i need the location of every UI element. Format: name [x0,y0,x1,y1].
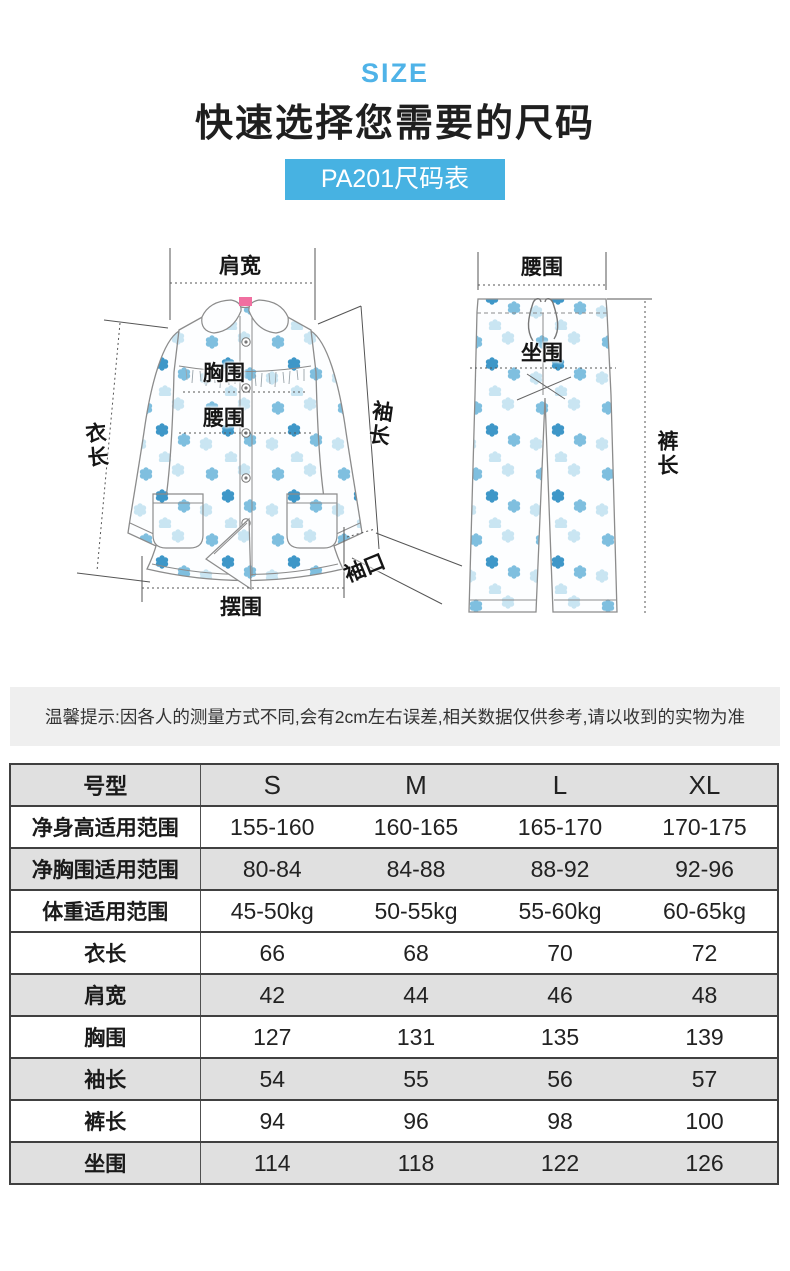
table-cell: 165-170 [488,806,632,848]
brand-tag [239,297,252,306]
row-label: 袖长 [10,1058,200,1100]
table-cell: 160-165 [344,806,488,848]
label-jacket-shoulder-width: 肩宽 [219,256,261,278]
table-cell: 48 [632,974,778,1016]
jacket-illustration [128,297,362,589]
table-cell: 54 [200,1058,344,1100]
label-pants-waist: 腰围 [521,257,563,279]
table-row: 体重适用范围 45-50kg 50-55kg 55-60kg 60-65kg [10,890,778,932]
label-pants-hip: 坐围 [521,343,563,365]
table-row: 裤长 94 96 98 100 [10,1100,778,1142]
table-cell: 60-65kg [632,890,778,932]
table-row: 衣长 66 68 70 72 [10,932,778,974]
table-cell: 122 [488,1142,632,1184]
label-jacket-chest: 胸围 [203,363,245,385]
table-cell: 42 [200,974,344,1016]
table-row: 净胸围适用范围 80-84 84-88 88-92 92-96 [10,848,778,890]
table-row: 净身高适用范围 155-160 160-165 165-170 170-175 [10,806,778,848]
column-header: XL [632,764,778,806]
table-row: 袖长 54 55 56 57 [10,1058,778,1100]
table-cell: 45-50kg [200,890,344,932]
measurement-diagram: 肩宽 胸围 腰围 衣长 袖长 袖口 摆围 腰围 坐围 裤长 [0,0,790,660]
notice-text: 温馨提示:因各人的测量方式不同,会有2cm左右误差,相关数据仅供参考,请以收到的… [45,704,745,729]
notice-bar: 温馨提示:因各人的测量方式不同,会有2cm左右误差,相关数据仅供参考,请以收到的… [10,687,780,746]
column-header: L [488,764,632,806]
table-cell: 55 [344,1058,488,1100]
row-label: 裤长 [10,1100,200,1142]
table-cell: 127 [200,1016,344,1058]
table-cell: 96 [344,1100,488,1142]
label-jacket-waist: 腰围 [203,408,245,430]
label-pants-length: 裤长 [655,430,677,478]
table-cell: 55-60kg [488,890,632,932]
table-cell: 114 [200,1142,344,1184]
row-label: 净身高适用范围 [10,806,200,848]
row-label: 胸围 [10,1016,200,1058]
table-cell: 118 [344,1142,488,1184]
table-row: 胸围 127 131 135 139 [10,1016,778,1058]
table-cell: 66 [200,932,344,974]
size-guide-page: SIZE 快速选择您需要的尺码 PA201尺码表 [0,0,790,1271]
table-cell: 46 [488,974,632,1016]
label-jacket-garment-length: 衣长 [82,421,108,471]
table-cell: 126 [632,1142,778,1184]
table-cell: 84-88 [344,848,488,890]
row-label: 体重适用范围 [10,890,200,932]
table-cell: 92-96 [632,848,778,890]
table-cell: 70 [488,932,632,974]
column-header: 号型 [10,764,200,806]
table-cell: 57 [632,1058,778,1100]
table-cell: 100 [632,1100,778,1142]
table-cell: 139 [632,1016,778,1058]
table-header-row: 号型 S M L XL [10,764,778,806]
table-row: 坐围 114 118 122 126 [10,1142,778,1184]
row-label: 衣长 [10,932,200,974]
table-row: 肩宽 42 44 46 48 [10,974,778,1016]
table-cell: 94 [200,1100,344,1142]
row-label: 净胸围适用范围 [10,848,200,890]
label-jacket-hem: 摆围 [220,597,262,619]
size-table: 号型 S M L XL 净身高适用范围 155-160 160-165 165-… [9,763,779,1185]
column-header: M [344,764,488,806]
table-cell: 131 [344,1016,488,1058]
table-cell: 88-92 [488,848,632,890]
column-header: S [200,764,344,806]
table-cell: 170-175 [632,806,778,848]
table-cell: 56 [488,1058,632,1100]
row-label: 肩宽 [10,974,200,1016]
table-cell: 98 [488,1100,632,1142]
table-cell: 68 [344,932,488,974]
table-cell: 44 [344,974,488,1016]
table-cell: 155-160 [200,806,344,848]
table-cell: 80-84 [200,848,344,890]
table-cell: 50-55kg [344,890,488,932]
row-label: 坐围 [10,1142,200,1184]
table-cell: 135 [488,1016,632,1058]
table-cell: 72 [632,932,778,974]
